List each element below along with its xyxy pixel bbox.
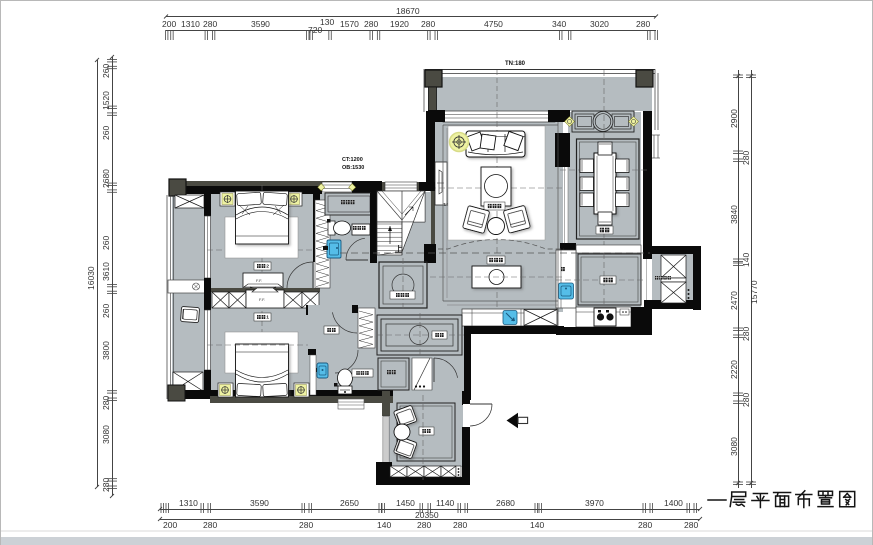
svg-text:3080: 3080 [101,425,111,444]
svg-text:260: 260 [101,304,111,318]
svg-text:140: 140 [530,520,544,530]
svg-text:20350: 20350 [415,510,439,520]
svg-text:1400: 1400 [664,498,683,508]
svg-text:280: 280 [453,520,467,530]
svg-text:OB:1530: OB:1530 [342,165,364,171]
svg-text:F.F.: F.F. [256,278,262,283]
svg-text:140: 140 [741,253,751,267]
svg-text:1450: 1450 [396,498,415,508]
svg-text:1310: 1310 [179,498,198,508]
svg-text:140: 140 [377,520,391,530]
svg-text:720: 720 [308,25,322,35]
svg-text:260: 260 [101,236,111,250]
svg-text:1570: 1570 [340,19,359,29]
svg-text:1140: 1140 [436,498,455,508]
svg-text:200: 200 [163,520,177,530]
svg-text:1310: 1310 [181,19,200,29]
svg-text:2900: 2900 [729,109,739,128]
svg-text:F.F.: F.F. [259,297,265,302]
svg-text:4750: 4750 [484,19,503,29]
svg-text:1920: 1920 [390,19,409,29]
svg-text:18670: 18670 [396,6,420,16]
svg-text:16030: 16030 [86,266,96,290]
svg-text:3080: 3080 [729,437,739,456]
svg-text:260: 260 [101,64,111,78]
svg-text:2470: 2470 [729,291,739,310]
svg-text:2: 2 [266,264,269,270]
svg-text:200: 200 [162,19,176,29]
svg-text:280: 280 [741,151,751,165]
svg-text:3610: 3610 [101,262,111,281]
svg-text:280: 280 [299,520,313,530]
svg-text:280: 280 [741,393,751,407]
svg-text:280: 280 [638,520,652,530]
svg-text:2680: 2680 [496,498,515,508]
svg-text:280: 280 [684,520,698,530]
svg-text:CT:1200: CT:1200 [342,157,363,163]
svg-text:280: 280 [421,19,435,29]
svg-text:280: 280 [101,396,111,410]
svg-text:2650: 2650 [340,498,359,508]
svg-text:15770: 15770 [749,280,759,304]
svg-text:3590: 3590 [250,498,269,508]
svg-text:280: 280 [203,520,217,530]
svg-text:2680: 2680 [101,169,111,188]
svg-text:1: 1 [266,315,269,321]
svg-text:2220: 2220 [729,360,739,379]
svg-text:TN:180: TN:180 [505,61,526,67]
svg-text:3800: 3800 [101,341,111,360]
svg-text:3020: 3020 [590,19,609,29]
svg-text:280: 280 [101,478,111,492]
svg-text:280: 280 [741,327,751,341]
svg-text:3590: 3590 [251,19,270,29]
svg-text:3970: 3970 [585,498,604,508]
svg-text:280: 280 [636,19,650,29]
svg-text:340: 340 [552,19,566,29]
svg-text:1520: 1520 [101,91,111,110]
svg-text:3840: 3840 [729,205,739,224]
svg-text:280: 280 [417,520,431,530]
svg-text:280: 280 [203,19,217,29]
svg-text:280: 280 [364,19,378,29]
svg-text:260: 260 [101,126,111,140]
